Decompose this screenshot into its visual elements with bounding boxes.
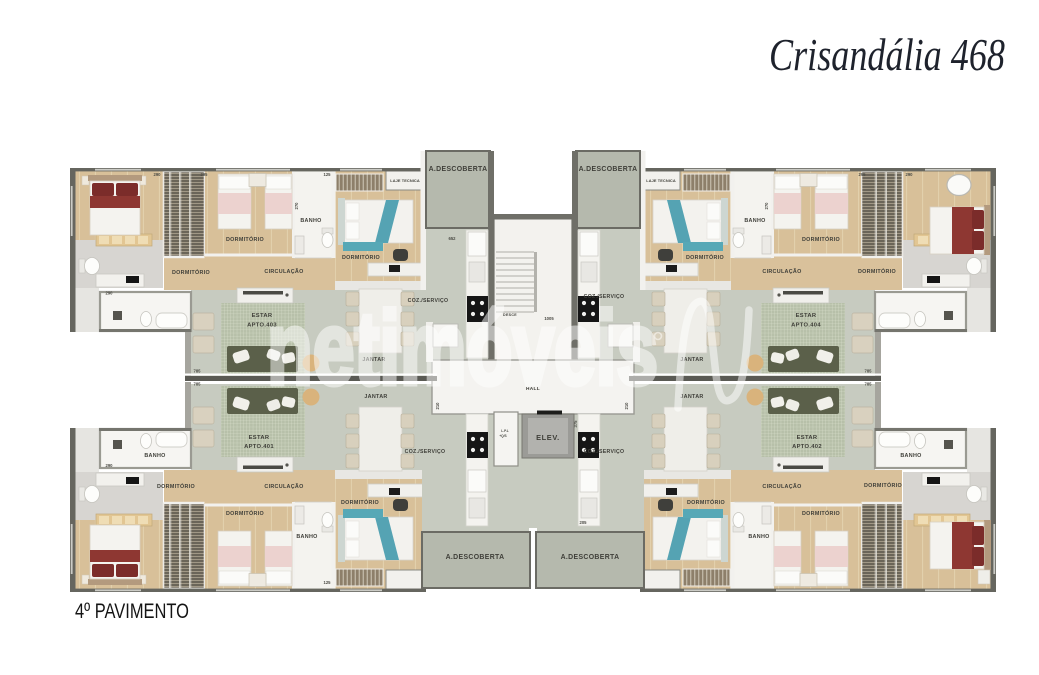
svg-text:125: 125 <box>324 580 332 585</box>
svg-text:4º PAVIMENTO: 4º PAVIMENTO <box>75 599 189 623</box>
svg-text:785: 785 <box>865 382 873 387</box>
svg-text:BANHO: BANHO <box>296 534 317 540</box>
svg-text:DORMITÓRIO: DORMITÓRIO <box>226 509 264 517</box>
svg-text:APTO.401: APTO.401 <box>244 444 274 450</box>
svg-text:ESTAR: ESTAR <box>796 313 817 319</box>
svg-text:DORMITÓRIO: DORMITÓRIO <box>157 482 195 490</box>
svg-text:COZ./SERVIÇO: COZ./SERVIÇO <box>405 449 446 455</box>
svg-text:LAJE TECNICA: LAJE TECNICA <box>390 178 420 183</box>
svg-text:295: 295 <box>859 172 867 177</box>
svg-text:A.DESCOBERTA: A.DESCOBERTA <box>429 166 488 173</box>
svg-text:Crisandália 468: Crisandália 468 <box>769 29 1005 80</box>
svg-text:270: 270 <box>764 202 769 210</box>
svg-text:375: 375 <box>573 420 578 428</box>
svg-text:CIRCULAÇÃO: CIRCULAÇÃO <box>762 268 801 275</box>
svg-text:270: 270 <box>294 202 299 210</box>
svg-text:+Q/S: +Q/S <box>499 434 506 438</box>
svg-text:205: 205 <box>580 520 588 525</box>
svg-text:ELEV.: ELEV. <box>536 433 560 442</box>
svg-text:290: 290 <box>106 291 114 296</box>
svg-text:DORMITÓRIO: DORMITÓRIO <box>172 268 210 276</box>
svg-text:290: 290 <box>154 172 162 177</box>
svg-text:DORMITÓRIO: DORMITÓRIO <box>341 498 379 506</box>
svg-text:COZ./SERVIÇO: COZ./SERVIÇO <box>584 449 625 455</box>
svg-text:BANHO: BANHO <box>144 453 165 459</box>
svg-text:DORMITÓRIO: DORMITÓRIO <box>687 498 725 506</box>
svg-text:DORMITÓRIO: DORMITÓRIO <box>342 253 380 261</box>
svg-text:652: 652 <box>449 236 457 241</box>
svg-text:ESTAR: ESTAR <box>249 435 270 441</box>
svg-text:295: 295 <box>201 172 209 177</box>
svg-text:BANHO: BANHO <box>300 218 321 224</box>
svg-text:A.DESCOBERTA: A.DESCOBERTA <box>446 554 505 561</box>
svg-text:LAJE TECNICA: LAJE TECNICA <box>646 178 676 183</box>
svg-text:785: 785 <box>194 369 202 374</box>
svg-text:L.P.L: L.P.L <box>501 429 508 433</box>
svg-text:DORMITÓRIO: DORMITÓRIO <box>226 235 264 243</box>
svg-text:785: 785 <box>865 369 873 374</box>
svg-text:DORMITÓRIO: DORMITÓRIO <box>864 481 902 489</box>
svg-text:CIRCULAÇÃO: CIRCULAÇÃO <box>762 483 801 490</box>
svg-text:netimóveis: netimóveis <box>267 291 658 407</box>
svg-text:290: 290 <box>906 172 914 177</box>
svg-text:JANTAR: JANTAR <box>680 394 703 400</box>
svg-text:APTO.402: APTO.402 <box>792 444 822 450</box>
svg-text:BANHO: BANHO <box>748 534 769 540</box>
svg-text:DORMITÓRIO: DORMITÓRIO <box>802 235 840 243</box>
svg-text:APTO.404: APTO.404 <box>791 323 821 329</box>
svg-text:A.DESCOBERTA: A.DESCOBERTA <box>579 166 638 173</box>
svg-text:DORMITÓRIO: DORMITÓRIO <box>802 509 840 517</box>
svg-text:BANHO: BANHO <box>900 453 921 459</box>
svg-text:290: 290 <box>106 463 114 468</box>
svg-text:CIRCULAÇÃO: CIRCULAÇÃO <box>264 483 303 490</box>
svg-text:DORMITÓRIO: DORMITÓRIO <box>858 267 896 275</box>
svg-text:785: 785 <box>194 382 202 387</box>
svg-text:A.DESCOBERTA: A.DESCOBERTA <box>561 554 620 561</box>
svg-text:125: 125 <box>324 172 332 177</box>
svg-text:CIRCULAÇÃO: CIRCULAÇÃO <box>264 268 303 275</box>
svg-text:DORMITÓRIO: DORMITÓRIO <box>686 253 724 261</box>
svg-text:BANHO: BANHO <box>744 218 765 224</box>
svg-text:ESTAR: ESTAR <box>797 435 818 441</box>
